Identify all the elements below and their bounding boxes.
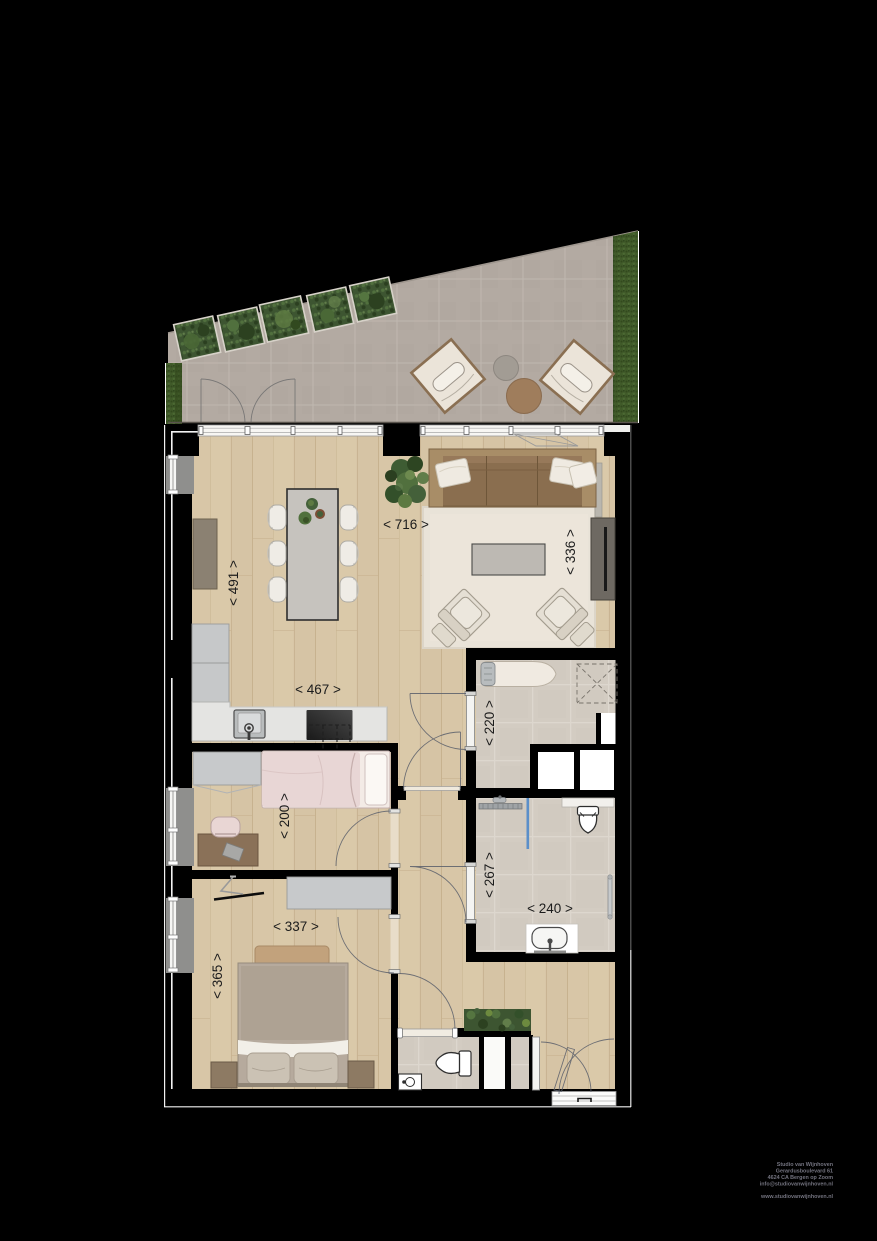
svg-text:< 716 >: < 716 > — [383, 517, 429, 532]
svg-text:< 365 >: < 365 > — [210, 953, 225, 999]
svg-text:< 491 >: < 491 > — [226, 560, 241, 606]
svg-text:Studio van Wijnhoven: Studio van Wijnhoven — [777, 1162, 833, 1168]
svg-text:4624 CA Bergen op Zoom: 4624 CA Bergen op Zoom — [768, 1175, 834, 1181]
svg-text:www.studiovanwijnhoven.nl: www.studiovanwijnhoven.nl — [760, 1194, 833, 1200]
svg-text:< 220 >: < 220 > — [482, 700, 497, 746]
svg-text:Gerardusboulevard 61: Gerardusboulevard 61 — [776, 1169, 833, 1175]
svg-text:< 337 >: < 337 > — [273, 919, 319, 934]
svg-text:< 267 >: < 267 > — [482, 852, 497, 898]
svg-text:< 200 >: < 200 > — [277, 793, 292, 839]
svg-text:< 240 >: < 240 > — [527, 901, 573, 916]
svg-text:< 336 >: < 336 > — [563, 529, 578, 575]
svg-text:< 467 >: < 467 > — [295, 682, 341, 697]
svg-text:info@studiovanwijnhoven.nl: info@studiovanwijnhoven.nl — [760, 1182, 834, 1188]
